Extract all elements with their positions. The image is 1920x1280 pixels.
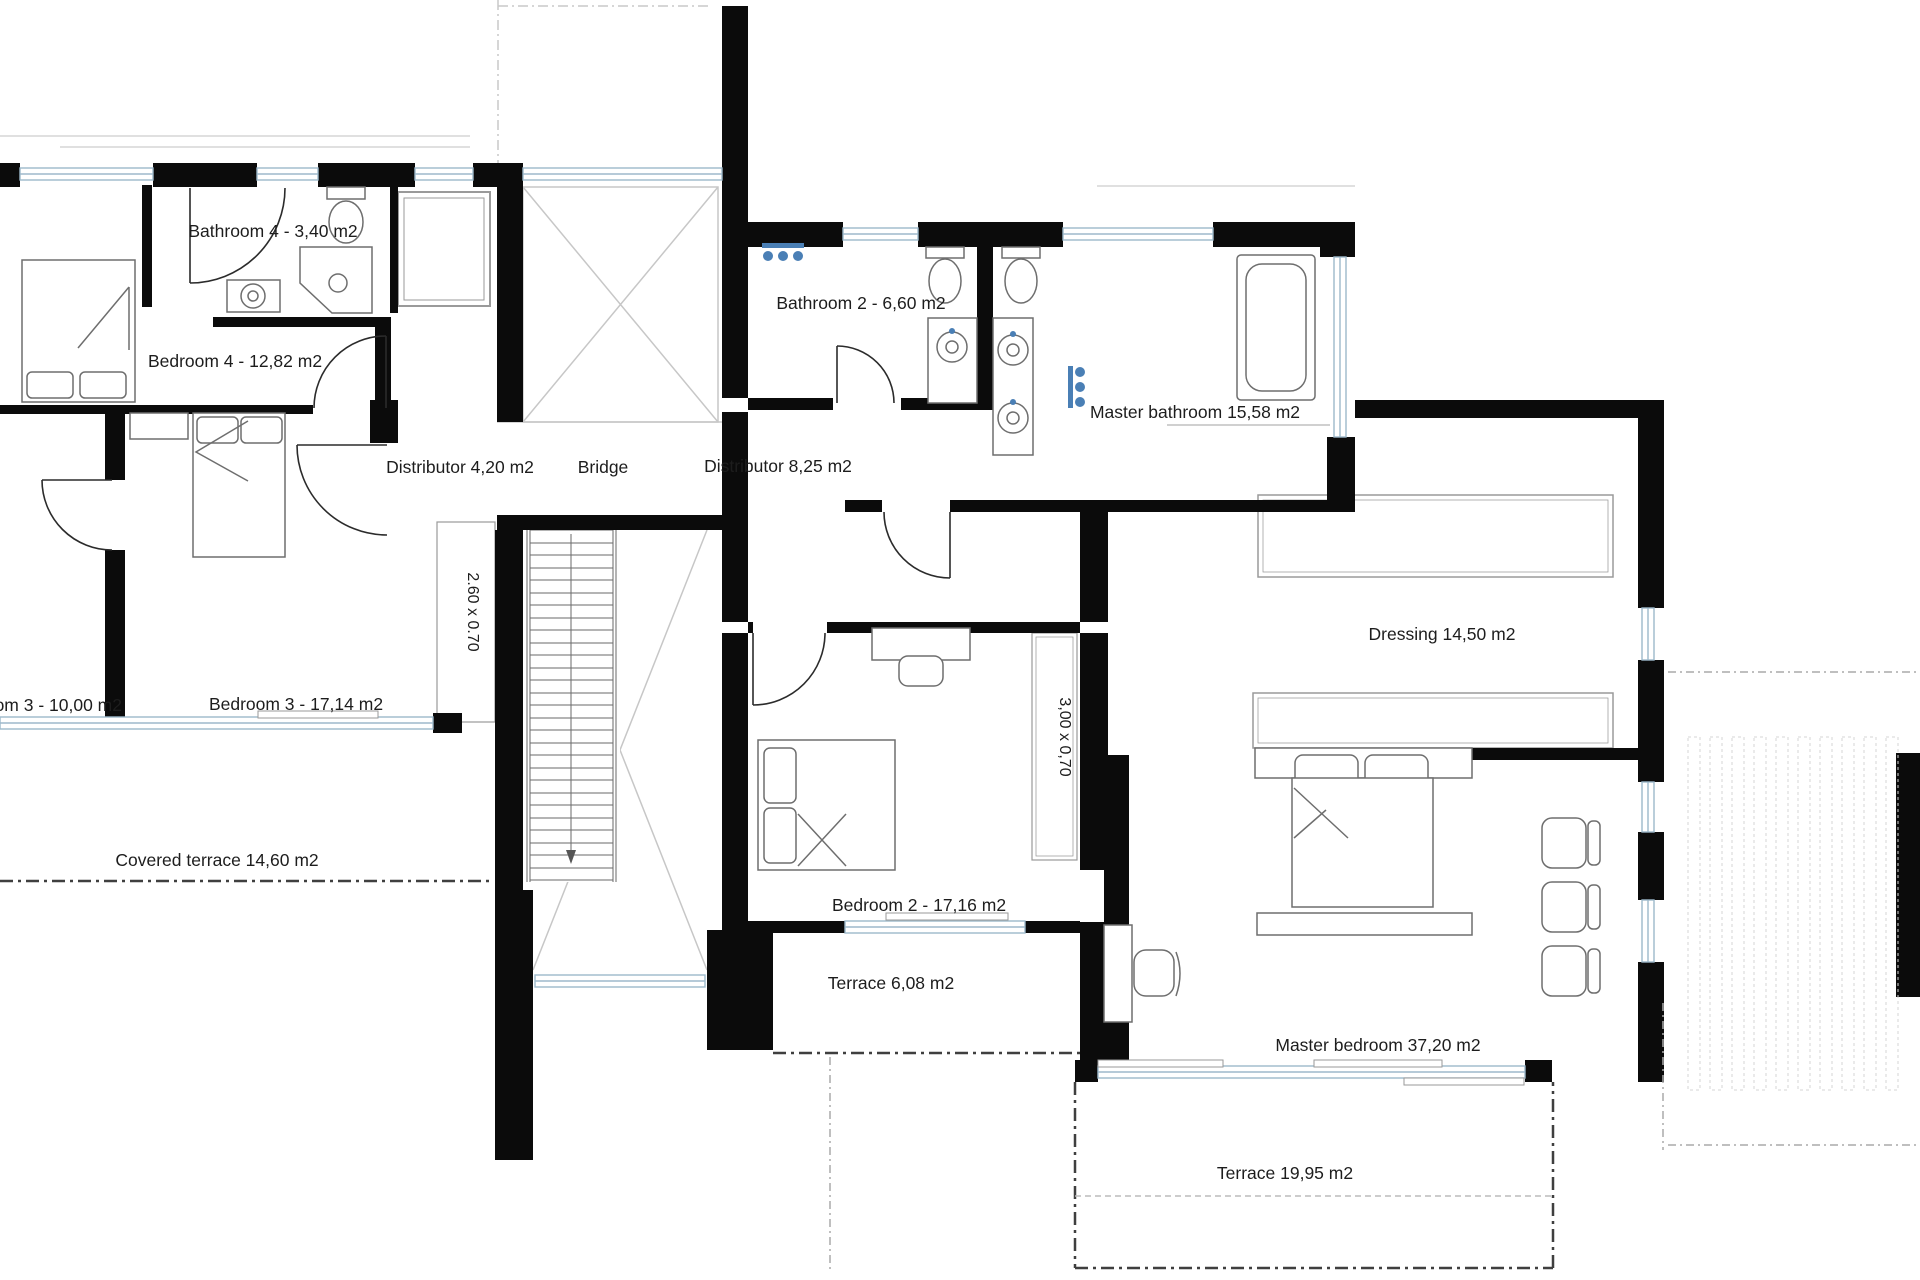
sill xyxy=(1098,1060,1223,1067)
label-bathroom4: Bathroom 4 - 3,40 m2 xyxy=(188,221,357,241)
wall xyxy=(495,530,523,890)
wall xyxy=(497,515,722,530)
label-bathroom3: Bathroom 3 - 10,00 m2 xyxy=(0,695,122,715)
wall xyxy=(1080,512,1108,622)
washbasin-bathroom4 xyxy=(227,280,280,312)
wall xyxy=(1638,660,1664,782)
label-stair-closet-dim: 2.60 x 0.70 xyxy=(464,572,481,651)
deck-planks xyxy=(1688,737,1898,1090)
armchair-2 xyxy=(1542,882,1600,932)
wall xyxy=(142,185,152,307)
wall xyxy=(1025,921,1080,933)
wall xyxy=(375,317,391,404)
label-master-bedroom: Master bedroom 37,20 m2 xyxy=(1275,1035,1480,1055)
wall xyxy=(1080,633,1108,870)
fixture-accents xyxy=(762,243,1085,408)
label-master-bathroom: Master bathroom 15,58 m2 xyxy=(1090,402,1300,422)
wall xyxy=(918,222,1063,247)
wall xyxy=(105,550,125,717)
toilet-master-bathroom xyxy=(1002,247,1040,303)
label-bedroom4: Bedroom 4 - 12,82 m2 xyxy=(148,351,322,371)
faucet-bathroom2 xyxy=(949,328,955,334)
wall-bath-divider xyxy=(977,247,993,398)
armchair-3 xyxy=(1542,946,1600,996)
vanity-master-bathroom xyxy=(993,318,1033,455)
hall-cupboard-outer xyxy=(398,192,490,306)
door-bedroom2 xyxy=(753,633,825,705)
armchair-1 xyxy=(1542,818,1600,868)
label-terrace-large: Terrace 19,95 m2 xyxy=(1217,1163,1353,1183)
towel-radiator-bathroom2 xyxy=(762,243,804,261)
upper-void-cross xyxy=(523,187,718,422)
wall xyxy=(1355,400,1643,418)
sill xyxy=(1404,1078,1524,1085)
shower-bathroom4 xyxy=(300,247,372,313)
towel-radiator-master-bathroom xyxy=(1068,366,1085,408)
wall xyxy=(370,400,398,443)
door-bathroom3 xyxy=(42,480,112,550)
label-bridge: Bridge xyxy=(578,457,629,477)
door-master-bathroom xyxy=(884,512,950,578)
label-bedroom2-closet-dim: 3,00 x 0,70 xyxy=(1056,697,1073,776)
wall xyxy=(318,163,415,187)
wall xyxy=(748,622,753,633)
wall xyxy=(1075,1060,1098,1082)
label-dressing: Dressing 14,50 m2 xyxy=(1369,624,1516,644)
label-distributor-4: Distributor 4,20 m2 xyxy=(386,457,534,477)
wall-spine xyxy=(722,6,748,247)
wall xyxy=(1638,962,1664,1082)
wall xyxy=(1213,222,1320,247)
wall-spine xyxy=(722,247,748,398)
wall xyxy=(748,921,845,933)
wall-spine xyxy=(722,633,748,930)
desk-master-bedroom xyxy=(1104,925,1180,1022)
bed-master-bedroom xyxy=(1255,748,1472,935)
floor-plan-canvas: Bathroom 4 - 3,40 m2 Bedroom 4 - 12,82 m… xyxy=(0,0,1920,1280)
wall xyxy=(1638,832,1664,900)
wall xyxy=(105,413,125,480)
wall xyxy=(433,713,462,733)
label-bedroom3: Bedroom 3 - 17,14 m2 xyxy=(209,694,383,714)
wall xyxy=(1896,753,1920,997)
bed-bedroom3 xyxy=(130,413,285,557)
wall xyxy=(1320,222,1355,257)
wall xyxy=(495,890,533,1160)
wall xyxy=(153,163,257,187)
wall xyxy=(473,163,523,187)
label-terrace-small: Terrace 6,08 m2 xyxy=(828,973,954,993)
roof-dash-lines xyxy=(498,0,712,163)
wall xyxy=(0,163,20,187)
dressing-closet-bottom-inner xyxy=(1258,698,1608,743)
faucet-master-1 xyxy=(1010,331,1016,337)
desk-bedroom2 xyxy=(872,628,970,686)
wall xyxy=(1525,1060,1552,1082)
bed-bedroom2 xyxy=(758,740,895,870)
sill xyxy=(1314,1060,1442,1067)
wall xyxy=(497,187,523,422)
label-distributor-8: Distributor 8,25 m2 xyxy=(704,456,852,476)
label-bathroom2: Bathroom 2 - 6,60 m2 xyxy=(776,293,945,313)
faucet-master-2 xyxy=(1010,399,1016,405)
bed-bedroom4 xyxy=(22,260,135,402)
wall-spine xyxy=(722,412,748,622)
door-bathroom2 xyxy=(837,346,894,403)
hall-cupboard-inner xyxy=(404,198,484,300)
bathtub-master-bathroom xyxy=(1237,255,1315,400)
wall xyxy=(390,187,398,313)
wall xyxy=(1638,400,1664,608)
wall-block xyxy=(707,930,773,1050)
label-bedroom2: Bedroom 2 - 17,16 m2 xyxy=(832,895,1006,915)
wall xyxy=(748,398,833,410)
wall xyxy=(845,500,882,512)
wall xyxy=(950,500,1355,512)
staircase xyxy=(524,528,620,882)
wall xyxy=(213,317,377,327)
door-bedroom3 xyxy=(297,445,387,535)
dressing-closet-bottom xyxy=(1253,693,1613,748)
floor-plan-page: Bathroom 4 - 3,40 m2 Bedroom 4 - 12,82 m… xyxy=(0,0,1920,1280)
label-covered-terrace: Covered terrace 14,60 m2 xyxy=(115,850,318,870)
